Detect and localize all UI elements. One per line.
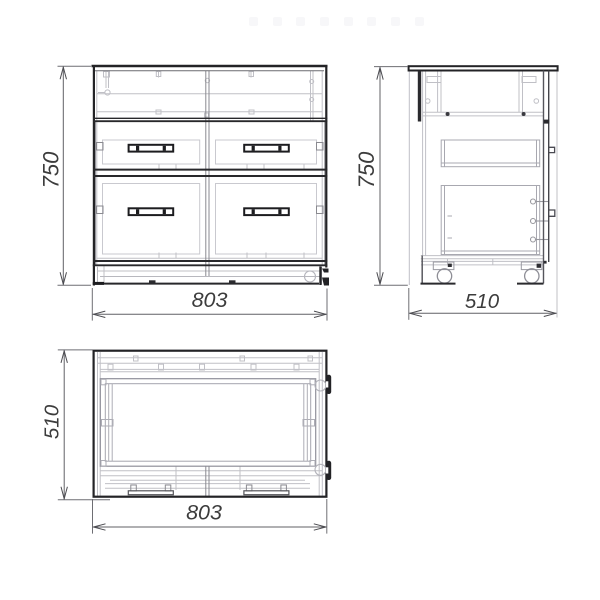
- svg-text:803: 803: [186, 501, 222, 525]
- svg-text:750: 750: [354, 151, 379, 188]
- svg-text:803: 803: [192, 288, 228, 312]
- svg-text:510: 510: [41, 404, 64, 439]
- svg-text:510: 510: [465, 290, 500, 313]
- svg-text:750: 750: [39, 151, 64, 188]
